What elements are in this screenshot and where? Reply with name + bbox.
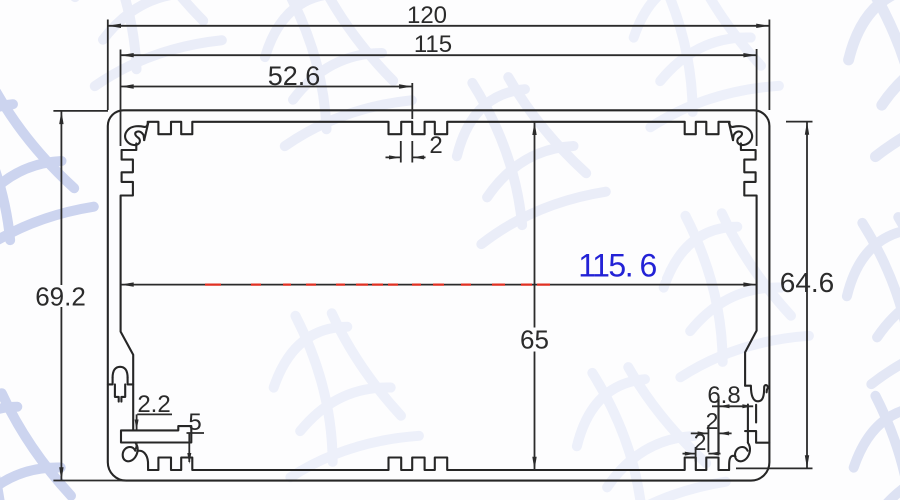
svg-text:52.6: 52.6: [268, 61, 321, 91]
svg-text:65: 65: [520, 325, 549, 355]
svg-text:69.2: 69.2: [35, 282, 86, 312]
svg-text:2: 2: [706, 408, 719, 434]
svg-text:64.6: 64.6: [780, 267, 835, 298]
svg-text:120: 120: [407, 2, 447, 29]
svg-text:115. 6: 115. 6: [578, 248, 656, 284]
svg-text:6.8: 6.8: [707, 382, 740, 409]
svg-text:115: 115: [414, 31, 452, 58]
svg-text:2: 2: [694, 429, 707, 455]
svg-text:2.2: 2.2: [137, 391, 170, 418]
svg-text:2: 2: [429, 132, 442, 159]
svg-text:5: 5: [188, 409, 201, 436]
